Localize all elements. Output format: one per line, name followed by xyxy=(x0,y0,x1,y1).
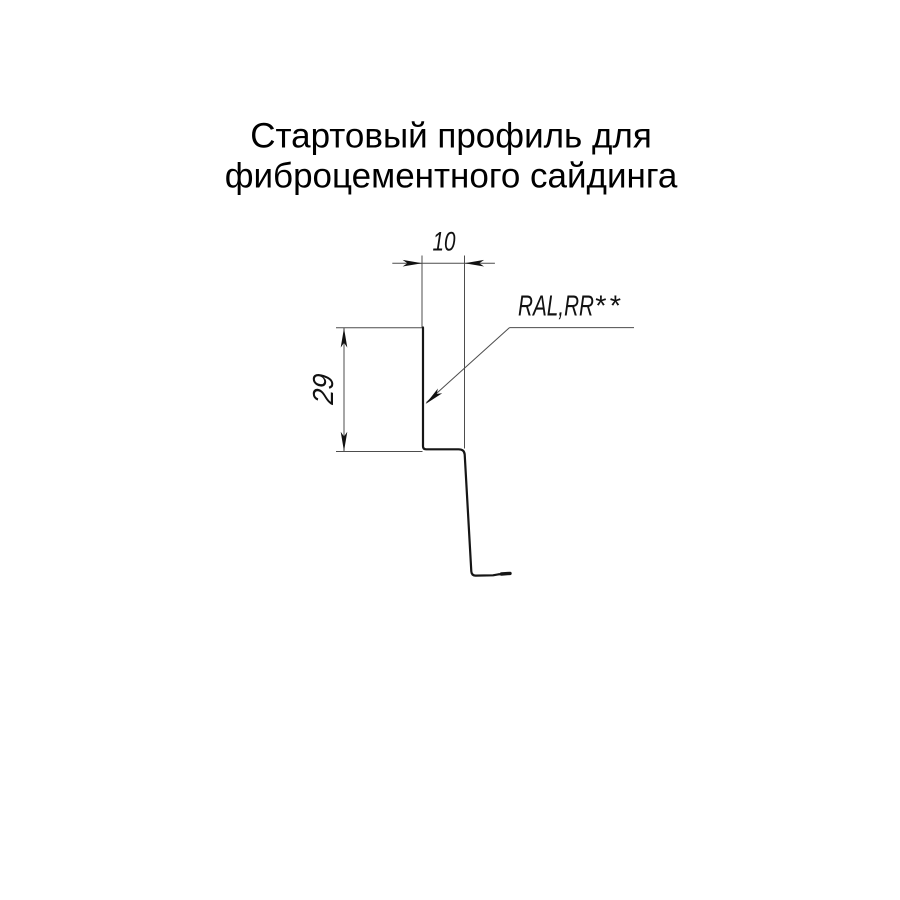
svg-text:RAL,RR: RAL,RR xyxy=(518,290,594,322)
svg-text:29: 29 xyxy=(308,372,340,406)
svg-text:10: 10 xyxy=(433,227,456,257)
svg-text:*: * xyxy=(594,290,607,322)
svg-text:*: * xyxy=(609,290,622,322)
svg-text:фиброцементного сайдинга: фиброцементного сайдинга xyxy=(225,157,678,196)
svg-text:Стартовый профиль для: Стартовый профиль для xyxy=(250,117,652,156)
